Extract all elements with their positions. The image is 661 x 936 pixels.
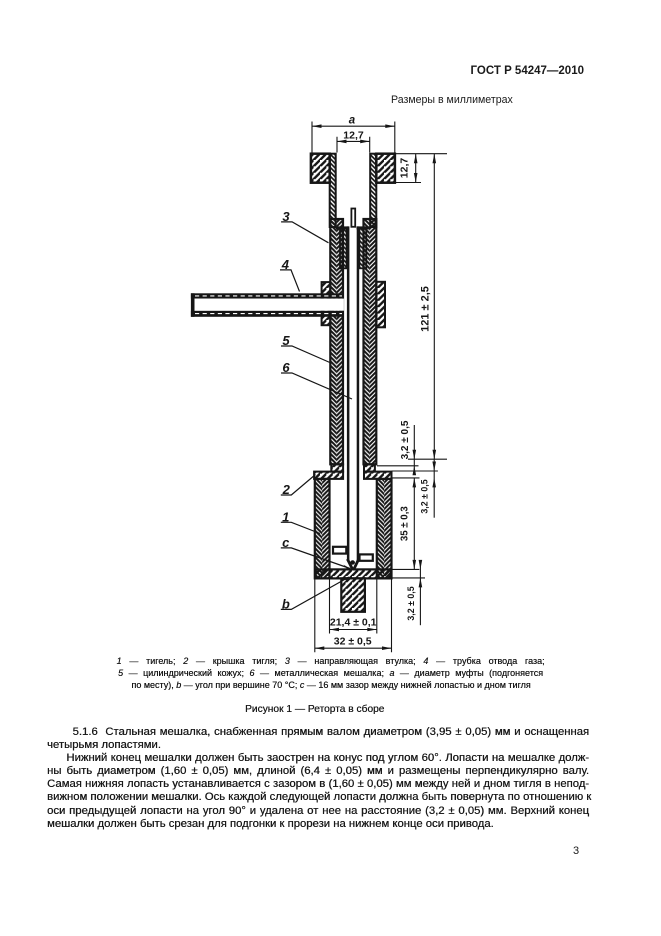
svg-text:32 ± 0,5: 32 ± 0,5 xyxy=(334,635,372,647)
svg-text:35 ± 0,3: 35 ± 0,3 xyxy=(400,506,411,542)
svg-text:12,7: 12,7 xyxy=(399,158,411,179)
svg-text:a: a xyxy=(349,114,356,126)
svg-text:121 ± 2,5: 121 ± 2,5 xyxy=(420,286,432,332)
svg-text:21,4 ± 0,1: 21,4 ± 0,1 xyxy=(330,617,377,629)
svg-text:3,2 ± 0,5: 3,2 ± 0,5 xyxy=(400,420,411,459)
svg-text:3,2 ± 0,5: 3,2 ± 0,5 xyxy=(420,479,430,513)
svg-text:3,2 ± 0,5: 3,2 ± 0,5 xyxy=(406,586,416,620)
svg-text:12,7: 12,7 xyxy=(343,129,364,141)
